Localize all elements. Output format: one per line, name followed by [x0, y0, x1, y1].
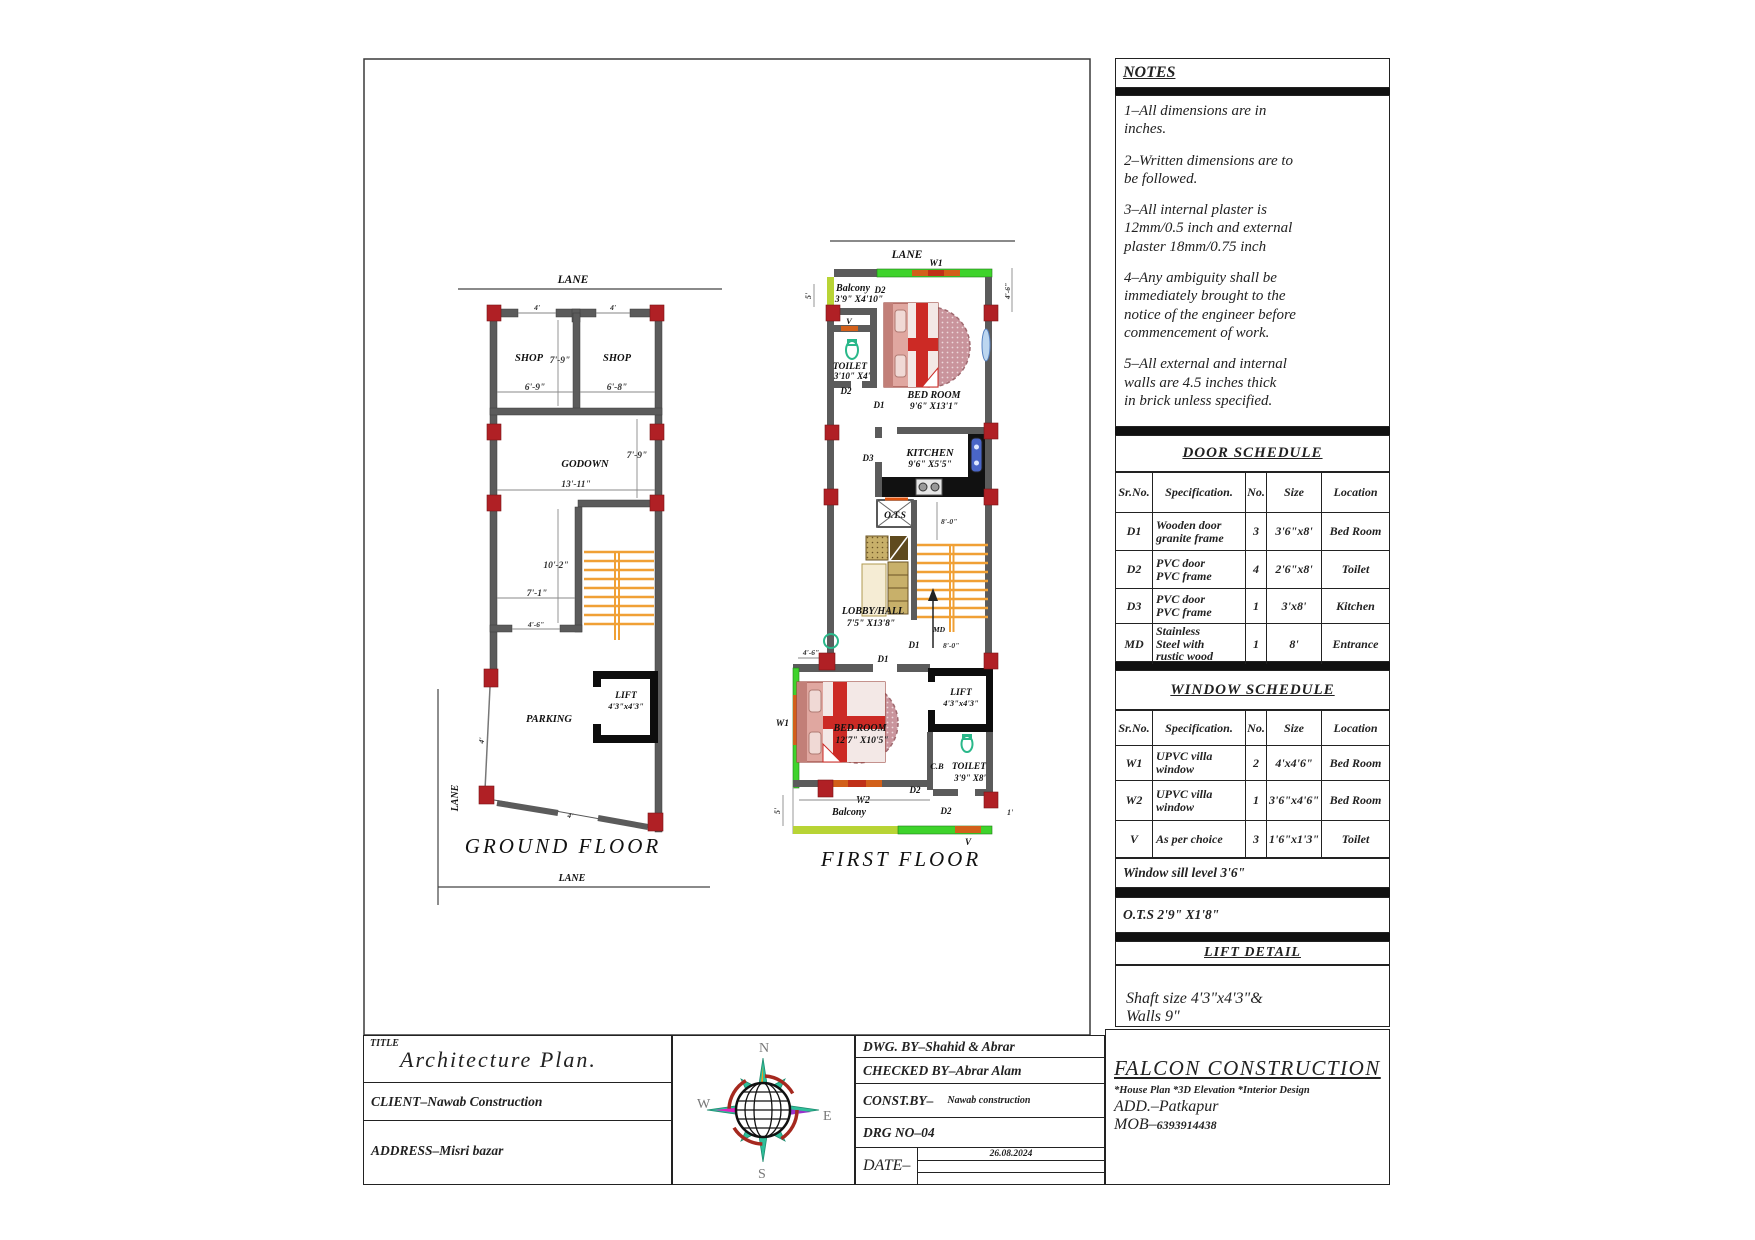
notes-header: NOTES — [1115, 58, 1390, 88]
ff-dim-bed2-top: 4'-6" — [802, 648, 819, 657]
cell-sr: W1 — [1116, 746, 1153, 781]
gf-bottom-wall-1 — [497, 803, 558, 813]
cell-size: 4'x4'6" — [1267, 746, 1322, 781]
col-header: Size — [1267, 473, 1322, 513]
ff-lift-size: 4'3"x4'3" — [942, 698, 979, 708]
ff-wc-icon-2 — [962, 735, 973, 752]
ff-title: FIRST FLOOR — [820, 847, 981, 871]
ff-sink-icon — [968, 434, 985, 477]
cell-size: 1'6"x1'3" — [1267, 821, 1322, 857]
cell-loc: Bed Room — [1322, 513, 1389, 551]
separator-bar — [1115, 88, 1390, 95]
ff-kitchen-left-wall-b — [875, 462, 882, 497]
ff-v2-window — [955, 826, 981, 833]
cell-sr: D1 — [1116, 513, 1153, 551]
date-row: DATE– 26.08.2024 — [856, 1148, 1104, 1184]
ff-dim-stair-bot: 8'-0" — [943, 641, 959, 650]
cell-loc: Toilet — [1322, 551, 1389, 589]
lift-detail-body: Shaft size 4'3"x4'3"& Walls 9" — [1115, 965, 1390, 1027]
mob-number: 6393914438 — [1157, 1118, 1217, 1132]
ff-d2-bed2-label: D2 — [909, 785, 921, 795]
ff-balcony-bottom-rail-lime — [793, 826, 898, 834]
ff-toilet1-bottom-wall-b — [862, 381, 877, 388]
company-name: FALCON CONSTRUCTION — [1114, 1056, 1389, 1081]
drg-no-row: DRG NO–04 — [856, 1118, 1104, 1148]
company-box: FALCON CONSTRUCTION *House Plan *3D Elev… — [1105, 1029, 1390, 1185]
ff-top-wall-left — [834, 269, 877, 277]
cell-spec: As per choice — [1153, 821, 1246, 857]
cell-size: 8' — [1267, 624, 1322, 664]
ots-text: O.T.S 2'9" X1'8" — [1123, 907, 1219, 923]
const-by-value: Nawab construction — [947, 1095, 1030, 1106]
cell-spec: Wooden door granite frame — [1153, 513, 1246, 551]
col-header: Size — [1267, 711, 1322, 746]
address-text: ADDRESS–Misri bazar — [371, 1143, 503, 1159]
cell-sr: W2 — [1116, 781, 1153, 821]
cell-loc: Toilet — [1322, 821, 1389, 857]
dwg-by-text: DWG. BY–Shahid & Abrar — [863, 1039, 1015, 1055]
door-schedule-header: DOOR SCHEDULE — [1115, 435, 1390, 472]
ff-v-window-1 — [841, 326, 858, 331]
const-by-label: CONST.BY– — [863, 1093, 933, 1109]
drawing-frame — [364, 59, 1090, 1035]
cell-sr: V — [1116, 821, 1153, 857]
col-header: Sr.No. — [1116, 711, 1153, 746]
door-schedule-title: DOOR SCHEDULE — [1182, 445, 1322, 462]
ff-bed-2 — [797, 682, 885, 762]
gf-dim-shop1-width: 6'-9" — [525, 383, 546, 393]
ff-kitchen-size: 9'6" X5'5" — [908, 460, 952, 470]
ff-lobby-size: 7'5" X13'8" — [847, 619, 895, 629]
cell-no: 2 — [1246, 746, 1267, 781]
drawing-sheet: LANE — [0, 0, 1755, 1240]
cell-loc: Bed Room — [1322, 781, 1389, 821]
ff-d1-bedroom2-label: D1 — [877, 654, 889, 664]
compass-globe — [736, 1083, 790, 1137]
notes-body: 1–All dimensions are in inches. 2–Writte… — [1115, 95, 1390, 427]
note-item: 3–All internal plaster is 12mm/0.5 inch … — [1124, 201, 1381, 256]
compass-s: S — [758, 1167, 766, 1182]
titleblock-left: TITLE Architecture Plan. CLIENT–Nawab Co… — [363, 1035, 672, 1185]
cell-size: 3'x8' — [1267, 589, 1322, 624]
gf-stairs — [584, 552, 654, 640]
lift-detail-header: LIFT DETAIL — [1115, 941, 1390, 965]
ff-dim-right-top: 4'-6" — [1003, 283, 1012, 300]
compass-rose: N S W E — [673, 1036, 853, 1183]
titleblock-middle: DWG. BY–Shahid & Abrar CHECKED BY–Abrar … — [855, 1035, 1105, 1185]
compass-e: E — [823, 1109, 832, 1124]
ff-md-label: MD — [932, 625, 946, 634]
gf-title: GROUND FLOOR — [465, 834, 661, 858]
cell-spec: UPVC villa window — [1153, 746, 1246, 781]
ff-cb-label: C.B — [930, 761, 944, 771]
door-schedule-table: Sr.No. Specification. No. Size Location … — [1115, 472, 1390, 662]
gf-dim-door1: 4' — [533, 303, 540, 312]
date-cell-empty — [918, 1173, 1104, 1184]
ff-w1-top-label: W1 — [929, 259, 942, 269]
date-label: DATE– — [863, 1157, 910, 1175]
ff-dim-left-top: 5' — [804, 292, 813, 299]
ff-balcony-left-rail — [827, 277, 834, 307]
ff-balcony-bottom-label: Balcony — [831, 807, 866, 818]
ff-lobby-label: LOBBY/HALL — [841, 606, 904, 617]
ff-bedroom1-size: 9'6" X13'1" — [910, 402, 958, 412]
ff-v1-label: V — [846, 316, 853, 326]
col-header: Sr.No. — [1116, 473, 1153, 513]
separator-bar — [1115, 888, 1390, 897]
ff-dim-right-bot: 1' — [1007, 808, 1014, 817]
ground-floor-plan: LANE — [438, 274, 722, 905]
date-value: 26.08.2024 — [990, 1149, 1033, 1159]
gf-dim-slant-left: 4' — [476, 737, 486, 745]
mob-label: MOB– — [1114, 1116, 1157, 1133]
compass-box: N S W E — [672, 1035, 855, 1185]
note-item: 1–All dimensions are in inches. — [1124, 102, 1381, 139]
ff-bed2-bottom-wall-b — [882, 780, 930, 787]
cell-sr: D2 — [1116, 551, 1153, 589]
ff-bed1-bottom-wall — [897, 427, 992, 434]
ff-kitchen-left-wall-a — [875, 427, 882, 438]
ff-lift-label: LIFT — [949, 688, 973, 698]
col-header: Location — [1322, 711, 1389, 746]
window-schedule-title: WINDOW SCHEDULE — [1170, 682, 1334, 699]
note-item: 5–All external and internal walls are 4.… — [1124, 355, 1381, 410]
cell-spec: Stainless Steel with rustic wood — [1153, 624, 1246, 664]
ff-window-right — [982, 329, 990, 361]
ff-lobby-furniture — [862, 536, 908, 616]
checked-by-row: CHECKED BY–Abrar Alam — [856, 1058, 1104, 1084]
gf-dim-hall-height: 10'-2" — [543, 561, 568, 571]
ff-d1-bedroom1-label: D1 — [873, 400, 885, 410]
cell-size: 3'6"x8' — [1267, 513, 1322, 551]
ff-toilet1-size: 3'10" X4' — [833, 371, 871, 381]
company-mobile: MOB–6393914438 — [1114, 1116, 1389, 1134]
lift-detail-text: Shaft size 4'3"x4'3"& Walls 9" — [1126, 990, 1263, 1025]
notes-column: NOTES 1–All dimensions are in inches. 2–… — [1115, 58, 1390, 1027]
ff-toilet2-label: TOILET — [952, 762, 987, 772]
ff-d2-toilet1-label: D2 — [840, 386, 852, 396]
notes-title: NOTES — [1123, 64, 1175, 82]
ff-dim-left-bot: 5' — [773, 807, 782, 814]
gf-lane-top-label: LANE — [557, 274, 589, 286]
cell-no: 4 — [1246, 551, 1267, 589]
date-cell-empty — [918, 1161, 1104, 1173]
company-address: ADD.–Patkapur — [1114, 1098, 1389, 1116]
ff-kitchen-label: KITCHEN — [905, 448, 954, 459]
ots-note: O.T.S 2'9" X1'8" — [1115, 897, 1390, 933]
compass-w: W — [697, 1097, 711, 1112]
gf-dim-godown-height: 7'-9" — [627, 451, 648, 461]
address-row: ADDRESS–Misri bazar — [364, 1121, 671, 1183]
ff-d2-toilet2-label: D2 — [940, 806, 952, 816]
gf-lift-size: 4'3"x4'3" — [607, 701, 644, 711]
gf-dim-door2: 4' — [609, 303, 616, 312]
gf-bottom-wall-2 — [598, 818, 648, 827]
checked-by-text: CHECKED BY–Abrar Alam — [863, 1063, 1022, 1079]
const-by-row: CONST.BY– Nawab construction — [856, 1084, 1104, 1118]
cell-no: 3 — [1246, 513, 1267, 551]
separator-bar — [1115, 427, 1390, 435]
col-header: Specification. — [1153, 711, 1246, 746]
ff-balcony-top-label: Balcony — [835, 283, 870, 294]
cell-loc: Kitchen — [1322, 589, 1389, 624]
col-header: No. — [1246, 711, 1267, 746]
cell-no: 1 — [1246, 781, 1267, 821]
cell-sr: MD — [1116, 624, 1153, 664]
cell-spec: PVC door PVC frame — [1153, 589, 1246, 624]
ff-bed2-top-wall-b — [897, 664, 930, 672]
ff-ots-label: O.T.S — [884, 511, 906, 521]
ff-wc-icon-1 — [846, 340, 858, 359]
col-header: No. — [1246, 473, 1267, 513]
cell-no: 3 — [1246, 821, 1267, 857]
gf-dim-hall-width: 7'-1" — [527, 589, 548, 599]
compass-n: N — [759, 1041, 769, 1056]
ff-w1-window-core — [928, 270, 944, 276]
gf-dim-godown-width: 13'-11" — [561, 480, 591, 490]
separator-bar — [1115, 933, 1390, 941]
ff-w2-label: W2 — [856, 795, 870, 806]
gf-lane-left-label: LANE — [450, 784, 461, 812]
cell-loc: Entrance — [1322, 624, 1389, 664]
ff-stove-icon — [916, 479, 942, 495]
client-text: CLIENT–Nawab Construction — [371, 1094, 542, 1110]
ff-balcony-top-size: 3'9" X4'10" — [834, 295, 883, 305]
ff-stairs — [917, 545, 988, 632]
ff-w1-side-label: W1 — [776, 719, 789, 729]
ff-d3-label: D3 — [862, 453, 874, 463]
ff-toilet2-size: 3'9" X8' — [953, 773, 986, 783]
gf-dim-shop-height: 7'-9" — [550, 356, 571, 366]
ff-toilet2-bottom-wall-a — [933, 789, 958, 796]
ff-bedroom2-label: BED ROOM — [832, 723, 887, 734]
ff-toilet1-right-wall — [870, 315, 877, 385]
gf-columns — [479, 305, 664, 831]
cell-size: 2'6"x8' — [1267, 551, 1322, 589]
ff-stair-wall — [911, 500, 917, 620]
ff-d1-stair-label: D1 — [908, 640, 920, 650]
gf-parking-label: PARKING — [526, 714, 572, 725]
drg-no-text: DRG NO–04 — [863, 1125, 935, 1141]
cell-sr: D3 — [1116, 589, 1153, 624]
window-sill-note: Window sill level 3'6" — [1115, 858, 1390, 888]
gf-lane-bottom-label: LANE — [558, 873, 586, 884]
window-schedule-table: Sr.No. Specification. No. Size Location … — [1115, 710, 1390, 858]
company-services: *House Plan *3D Elevation *Interior Desi… — [1114, 1085, 1389, 1096]
col-header: Specification. — [1153, 473, 1246, 513]
ff-v2-label: V — [965, 837, 972, 847]
cell-no: 1 — [1246, 589, 1267, 624]
gf-dim-slant-bottom: 4' — [566, 810, 574, 820]
ff-d2-balcony-label: D2 — [874, 285, 886, 295]
gf-shop1-label: SHOP — [515, 353, 544, 364]
window-sill-text: Window sill level 3'6" — [1123, 865, 1245, 881]
dwg-by-row: DWG. BY–Shahid & Abrar — [856, 1036, 1104, 1058]
gf-godown-label: GODOWN — [561, 459, 609, 470]
gf-shop2-label: SHOP — [603, 353, 632, 364]
note-item: 2–Written dimensions are to be followed. — [1124, 152, 1381, 189]
cell-no: 1 — [1246, 624, 1267, 664]
lift-detail-title: LIFT DETAIL — [1204, 945, 1301, 961]
date-cell: 26.08.2024 — [918, 1148, 1104, 1161]
ff-toilet2-right-wall — [986, 732, 993, 792]
client-row: CLIENT–Nawab Construction — [364, 1083, 671, 1121]
cell-spec: PVC door PVC frame — [1153, 551, 1246, 589]
gf-lift-label: LIFT — [614, 691, 638, 701]
cell-size: 3'6"x4'6" — [1267, 781, 1322, 821]
cell-spec: UPVC villa window — [1153, 781, 1246, 821]
ff-bed-1 — [884, 303, 938, 387]
cell-loc: Bed Room — [1322, 746, 1389, 781]
gf-dim-shop2-width: 6'-8" — [607, 383, 628, 393]
col-header: Location — [1322, 473, 1389, 513]
first-floor-plan: LANE W1 Balcony D2 3'9" X4'10" V — [773, 241, 1015, 871]
sheet-title: Architecture Plan. — [400, 1047, 671, 1073]
window-schedule-header: WINDOW SCHEDULE — [1115, 670, 1390, 710]
ff-bedroom1-label: BED ROOM — [906, 390, 961, 401]
ff-lane-label: LANE — [891, 249, 923, 261]
note-item: 4–Any ambiguity shall be immediately bro… — [1124, 269, 1381, 342]
gf-dim-stair: 4'-6" — [527, 620, 544, 629]
ff-dim-stair-top: 8'-0" — [941, 517, 957, 526]
ff-bedroom2-size: 12'7" X10'5" — [835, 736, 888, 746]
ff-w2-window-core — [848, 780, 866, 787]
ff-balcony-bottom-wall — [834, 308, 877, 315]
